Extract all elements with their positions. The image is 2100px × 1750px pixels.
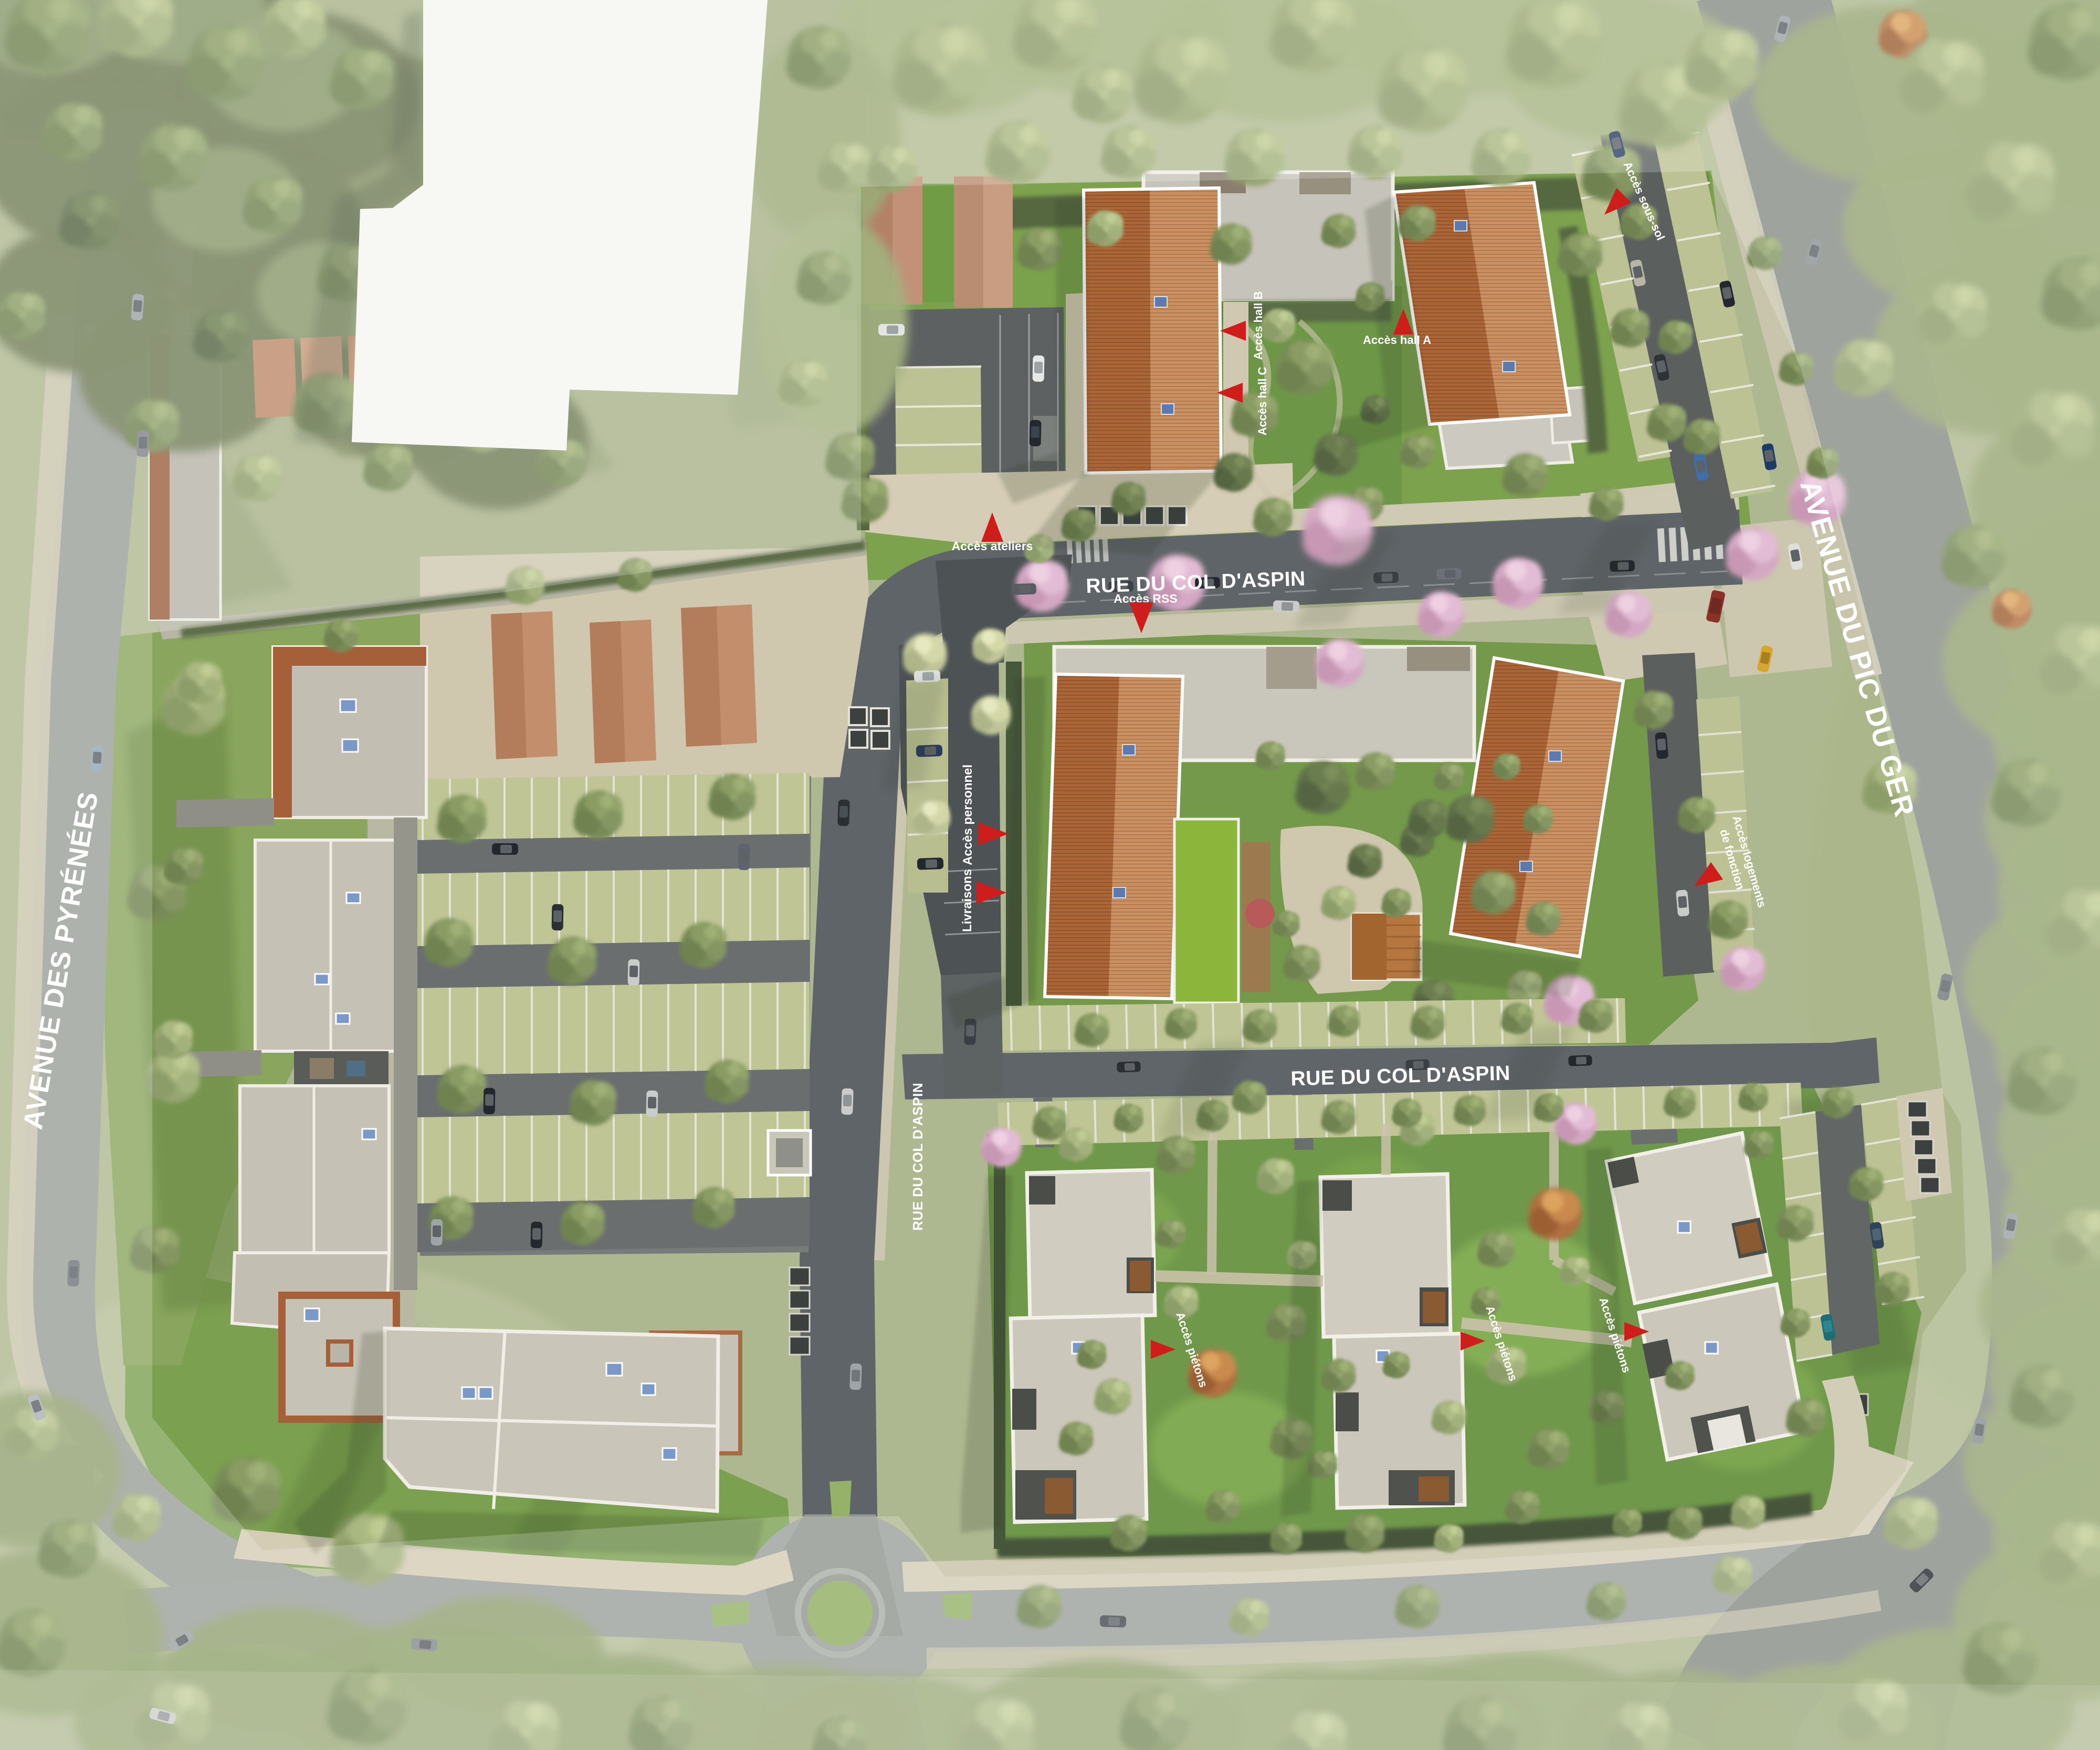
- svg-text:Accès hall A: Accès hall A: [1363, 333, 1431, 347]
- svg-text:Accès ateliers: Accès ateliers: [952, 539, 1033, 553]
- svg-text:Accès hall C: Accès hall C: [1256, 366, 1269, 435]
- svg-text:Livraisons: Livraisons: [960, 869, 974, 932]
- svg-text:Accès personnel: Accès personnel: [961, 764, 975, 865]
- svg-text:RUE DU COL D'ASPIN: RUE DU COL D'ASPIN: [910, 1083, 926, 1231]
- svg-text:Accès hall B: Accès hall B: [1252, 291, 1265, 360]
